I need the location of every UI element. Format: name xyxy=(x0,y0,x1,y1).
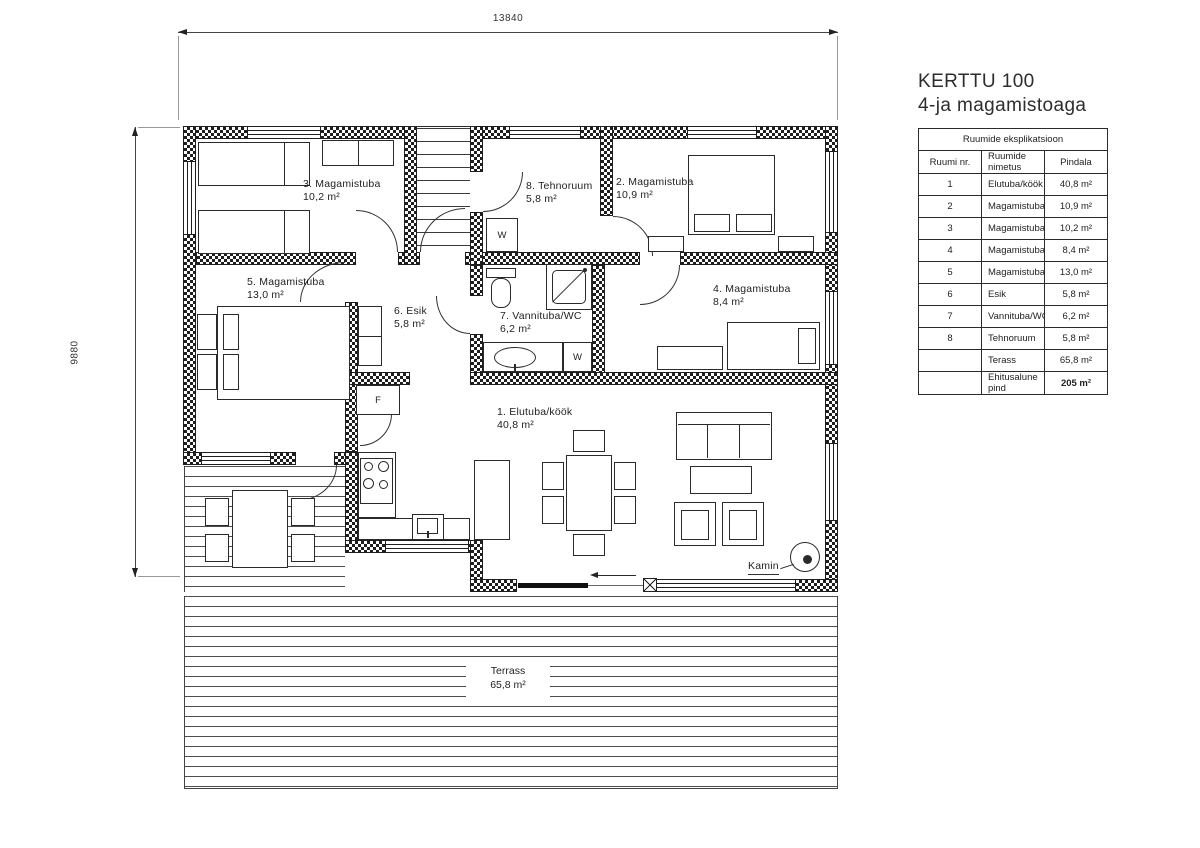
washing-machine: W xyxy=(486,218,518,252)
table-row: Ehitusalune pind205 m² xyxy=(919,372,1108,395)
room-label-2: 2. Magamistuba 10,9 m² xyxy=(616,176,694,202)
faucet xyxy=(514,364,516,372)
fridge-label: F xyxy=(375,395,381,406)
cell-name: Vannituba/WC xyxy=(982,306,1045,328)
col-header-area: Pindala xyxy=(1045,151,1108,174)
wall-segment xyxy=(345,540,386,553)
faucet xyxy=(427,531,429,538)
burner xyxy=(363,478,374,489)
room-schedule-table: Ruumide eksplikatsioon Ruumi nr. Ruumide… xyxy=(918,128,1108,395)
cell-name: Ehitusalune pind xyxy=(982,372,1045,395)
armchair-seat xyxy=(681,510,709,540)
room-label-4: 4. Magamistuba 8,4 m² xyxy=(713,283,791,309)
wall-segment xyxy=(470,265,483,296)
dim-arrow-right xyxy=(829,29,838,35)
cell-nr: 5 xyxy=(919,262,982,284)
shower-tray xyxy=(552,270,586,304)
window xyxy=(510,126,580,139)
toilet-cistern xyxy=(486,268,516,278)
burner xyxy=(364,462,373,471)
shower-head xyxy=(583,268,587,272)
wall-segment xyxy=(183,126,196,162)
dim-arrow-left xyxy=(178,29,187,35)
extension-line xyxy=(138,576,180,577)
wardrobe-line xyxy=(359,336,381,337)
leader-line xyxy=(780,564,794,569)
chair xyxy=(291,498,315,526)
room-area: 13,0 m² xyxy=(247,289,325,302)
cell-area: 5,8 m² xyxy=(1045,284,1108,306)
room-name: 8. Tehnoruum xyxy=(526,180,592,193)
room-name: 7. Vannituba/WC xyxy=(500,310,582,323)
sliding-door-panel xyxy=(518,583,588,588)
sofa-back-line xyxy=(678,424,770,425)
window xyxy=(248,126,320,139)
cell-area: 205 m² xyxy=(1045,372,1108,395)
table-row: 8Tehnoruum5,8 m² xyxy=(919,328,1108,350)
cell-nr: 7 xyxy=(919,306,982,328)
nightstand xyxy=(197,314,217,350)
cell-area: 8,4 m² xyxy=(1045,240,1108,262)
dining-table xyxy=(566,455,612,531)
chair xyxy=(205,498,229,526)
pillow xyxy=(223,354,239,390)
slide-direction-line xyxy=(598,575,636,576)
cell-name: Terass xyxy=(982,350,1045,372)
window xyxy=(825,152,838,232)
pillow xyxy=(736,214,772,232)
cell-nr: 8 xyxy=(919,328,982,350)
cell-nr xyxy=(919,372,982,395)
fridge: F xyxy=(356,385,400,415)
wall-segment xyxy=(183,452,202,465)
nightstand xyxy=(197,354,217,390)
door-arc xyxy=(640,265,680,305)
cell-name: Elutuba/köök xyxy=(982,174,1045,196)
col-header-name: Ruumide nimetus xyxy=(982,151,1045,174)
cell-area: 10,9 m² xyxy=(1045,196,1108,218)
outdoor-table xyxy=(232,490,288,568)
wall-segment xyxy=(270,452,296,465)
dim-arrow-up xyxy=(132,127,138,136)
bed-single xyxy=(198,210,310,254)
wall-segment xyxy=(600,126,613,216)
room-label-6: 6. Esik 5,8 m² xyxy=(394,305,427,331)
pillow xyxy=(223,314,239,350)
bed-line xyxy=(284,211,285,253)
table-title: Ruumide eksplikatsioon xyxy=(919,129,1108,151)
post-symbol xyxy=(643,578,657,592)
table-row: 6Esik5,8 m² xyxy=(919,284,1108,306)
table-row: 5Magamistuba13,0 m² xyxy=(919,262,1108,284)
wall-segment xyxy=(345,452,358,553)
wall-segment xyxy=(580,126,688,139)
room-label-5: 5. Magamistuba 13,0 m² xyxy=(247,276,325,302)
burner xyxy=(378,461,389,472)
cell-area: 5,8 m² xyxy=(1045,328,1108,350)
door-arc xyxy=(356,210,398,252)
wall-segment xyxy=(320,126,408,139)
extension-line xyxy=(837,36,838,120)
title-block: KERTTU 100 4-ja magamistoaga xyxy=(918,70,1086,118)
bed-line xyxy=(284,143,285,185)
fireplace-label: Kamin xyxy=(748,560,779,575)
col-header-nr: Ruumi nr. xyxy=(919,151,982,174)
door-arc xyxy=(483,172,523,212)
toilet-bowl xyxy=(491,278,511,308)
room-name: 2. Magamistuba xyxy=(616,176,694,189)
cell-name: Magamistuba xyxy=(982,262,1045,284)
wall-segment xyxy=(470,126,483,172)
cell-name: Tehnoruum xyxy=(982,328,1045,350)
kitchen-island xyxy=(474,460,510,540)
wall-segment xyxy=(470,579,517,592)
chair xyxy=(614,462,636,490)
table-title-row: Ruumide eksplikatsioon xyxy=(919,129,1108,151)
dimension-line-top xyxy=(178,32,838,33)
dresser xyxy=(657,346,723,370)
room-area: 5,8 m² xyxy=(394,318,427,331)
dresser-line xyxy=(358,141,359,165)
nightstand xyxy=(648,236,684,252)
dimension-line-left xyxy=(135,127,136,577)
cell-nr xyxy=(919,350,982,372)
cell-area: 40,8 m² xyxy=(1045,174,1108,196)
cell-nr: 6 xyxy=(919,284,982,306)
cell-nr: 1 xyxy=(919,174,982,196)
terrace-area: 65,8 m² xyxy=(490,679,526,693)
pillow xyxy=(694,214,730,232)
chair xyxy=(542,462,564,490)
terrace-name: Terrass xyxy=(491,665,525,679)
sliding-door-track xyxy=(586,585,644,586)
table-row: Terass65,8 m² xyxy=(919,350,1108,372)
room-name: 6. Esik xyxy=(394,305,427,318)
room-name: 1. Elutuba/köök xyxy=(497,406,572,419)
room-name: 4. Magamistuba xyxy=(713,283,791,296)
door-arc xyxy=(613,216,653,256)
coffee-table xyxy=(690,466,752,494)
door-arc xyxy=(436,296,470,334)
wall-segment xyxy=(470,212,483,265)
wall-segment xyxy=(825,126,838,152)
floor-plan-sheet: 13840 9880 Terrass 65,8 m² xyxy=(0,0,1200,848)
room-area: 10,9 m² xyxy=(616,189,694,202)
product-title: KERTTU 100 xyxy=(918,70,1086,94)
wall-segment xyxy=(680,252,838,265)
sofa-cushion-line xyxy=(739,424,740,458)
cell-area: 10,2 m² xyxy=(1045,218,1108,240)
wall-segment xyxy=(345,372,410,385)
table-row: 4Magamistuba8,4 m² xyxy=(919,240,1108,262)
chair xyxy=(291,534,315,562)
room-area: 6,2 m² xyxy=(500,323,582,336)
wall-segment xyxy=(470,372,838,385)
cell-name: Esik xyxy=(982,284,1045,306)
room-label-3: 3. Magamistuba 10,2 m² xyxy=(303,178,381,204)
room-label-8: 8. Tehnoruum 5,8 m² xyxy=(526,180,592,206)
cell-name: Magamistuba xyxy=(982,240,1045,262)
room-area: 8,4 m² xyxy=(713,296,791,309)
chair xyxy=(542,496,564,524)
nightstand xyxy=(778,236,814,252)
step-edge-line xyxy=(408,126,475,127)
table-row: 1Elutuba/köök40,8 m² xyxy=(919,174,1108,196)
wall-segment xyxy=(795,579,838,592)
armchair-seat xyxy=(729,510,757,540)
table-row: 2Magamistuba10,9 m² xyxy=(919,196,1108,218)
cell-area: 6,2 m² xyxy=(1045,306,1108,328)
washer-label: W xyxy=(573,352,582,363)
window xyxy=(202,452,270,465)
washer-label: W xyxy=(498,230,507,241)
chair xyxy=(573,430,605,452)
dimension-width-label: 13840 xyxy=(468,13,548,24)
dimension-height-label: 9880 xyxy=(70,318,81,388)
room-area: 5,8 m² xyxy=(526,193,592,206)
chair xyxy=(205,534,229,562)
cell-name: Magamistuba xyxy=(982,218,1045,240)
cell-name: Magamistuba xyxy=(982,196,1045,218)
cell-nr: 4 xyxy=(919,240,982,262)
sofa xyxy=(676,412,772,460)
window xyxy=(825,292,838,364)
room-label-7: 7. Vannituba/WC 6,2 m² xyxy=(500,310,582,336)
bed-single xyxy=(198,142,310,186)
slide-direction-arrow xyxy=(590,572,598,578)
cell-area: 65,8 m² xyxy=(1045,350,1108,372)
window xyxy=(183,162,196,234)
wall-segment xyxy=(592,265,605,385)
room-label-1: 1. Elutuba/köök 40,8 m² xyxy=(497,406,572,432)
washing-machine: W xyxy=(563,342,592,372)
cell-nr: 2 xyxy=(919,196,982,218)
table-header-row: Ruumi nr. Ruumide nimetus Pindala xyxy=(919,151,1108,174)
extension-line xyxy=(178,36,179,120)
room-area: 40,8 m² xyxy=(497,419,572,432)
room-name: 5. Magamistuba xyxy=(247,276,325,289)
window xyxy=(657,579,795,592)
terrace-label: Terrass 65,8 m² xyxy=(466,660,550,698)
extension-line xyxy=(138,127,180,128)
product-subtitle: 4-ja magamistoaga xyxy=(918,94,1086,118)
wall-segment xyxy=(404,126,417,265)
cell-area: 13,0 m² xyxy=(1045,262,1108,284)
chair xyxy=(614,496,636,524)
pillow xyxy=(798,328,816,364)
room-area: 10,2 m² xyxy=(303,191,381,204)
window xyxy=(386,540,468,553)
sofa-cushion-line xyxy=(707,424,708,458)
table-row: 3Magamistuba10,2 m² xyxy=(919,218,1108,240)
window xyxy=(688,126,756,139)
table-row: 7Vannituba/WC6,2 m² xyxy=(919,306,1108,328)
room-name: 3. Magamistuba xyxy=(303,178,381,191)
fireplace-dot xyxy=(803,555,812,564)
cell-nr: 3 xyxy=(919,218,982,240)
burner xyxy=(379,480,388,489)
window xyxy=(825,444,838,520)
chair xyxy=(573,534,605,556)
wall-segment xyxy=(183,234,196,465)
door-arc xyxy=(360,414,392,446)
